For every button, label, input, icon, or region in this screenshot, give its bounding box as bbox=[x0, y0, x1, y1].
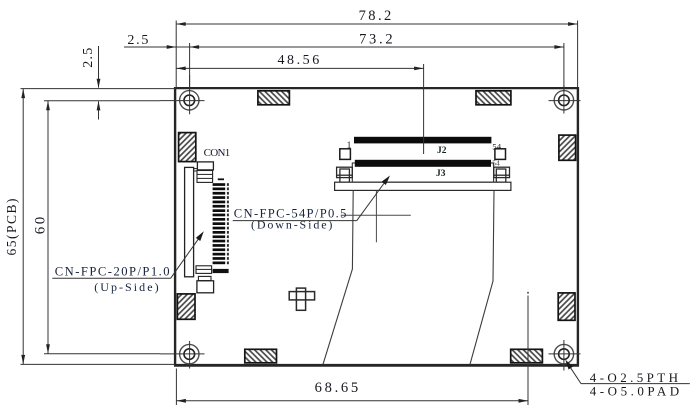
svg-text:68.65: 68.65 bbox=[315, 380, 359, 396]
svg-text:78.2: 78.2 bbox=[359, 8, 392, 24]
svg-text:J2: J2 bbox=[437, 146, 447, 156]
svg-text:CON1: CON1 bbox=[204, 147, 231, 159]
svg-text:2.5: 2.5 bbox=[81, 48, 96, 68]
svg-text:65(PCB): 65(PCB) bbox=[4, 199, 19, 256]
svg-text:73.2: 73.2 bbox=[359, 31, 393, 47]
svg-text:J3: J3 bbox=[436, 169, 446, 179]
svg-text:54: 54 bbox=[492, 159, 500, 168]
svg-text:2.5: 2.5 bbox=[127, 33, 148, 48]
svg-text:(Up-Side): (Up-Side) bbox=[94, 280, 158, 294]
svg-text:48.56: 48.56 bbox=[278, 53, 320, 68]
